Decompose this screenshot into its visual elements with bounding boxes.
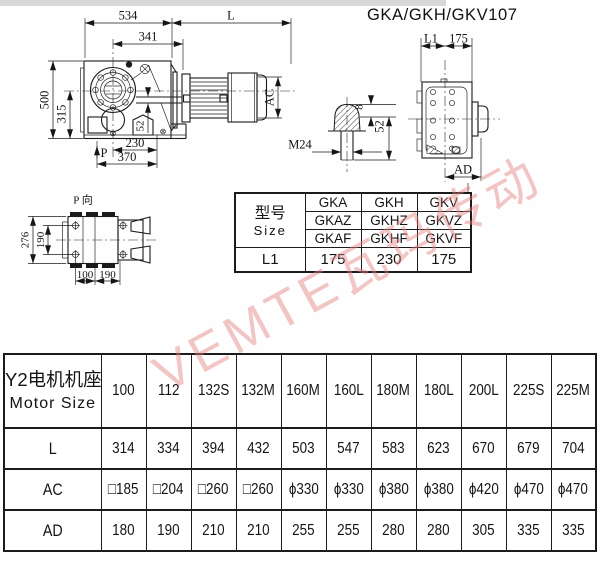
dim-52-shaft: 52 [373,120,387,133]
motor-col-header: 160M [281,354,326,428]
dim-8: 8 [354,104,366,110]
dim-L1: L1 [424,32,438,46]
size-table-header-en: Size [236,223,305,238]
model-cell: GKA [305,193,361,212]
table-cell: 704 [551,428,596,469]
table-cell: 314 [101,428,146,469]
motor-col-header: 180L [416,354,461,428]
model-cell: GKVZ [417,212,471,230]
table-cell: 432 [236,428,281,469]
motor-col-header: 132M [236,354,281,428]
motor-col-header: 160L [326,354,371,428]
table-cell: 334 [146,428,191,469]
table-cell: 335 [551,510,596,551]
motor-size-table: Y2电机机座号 Motor Size 100 112 132S 132M 160… [3,353,597,552]
l1-row-label: L1 [235,248,305,273]
model-cell: GKV [417,193,471,212]
table-cell: 255 [326,510,371,551]
size-table: 型号 Size GKA GKH GKV GKAZ GKHZ GKVZ GKAF … [234,192,472,273]
dim-175: 175 [449,32,468,46]
row-label-AC: AC [4,469,101,510]
dim-315: 315 [55,105,69,124]
shaft-detail: M24 8 52 [288,97,396,172]
dim-500: 500 [38,91,52,110]
motor-col-header: 200L [461,354,506,428]
dim-534: 534 [119,9,139,23]
row-label-L: L [4,428,101,469]
dim-190-horizontal: 190 [99,269,116,281]
dim-100: 100 [77,269,94,281]
model-cell: GKAZ [305,212,361,230]
table-cell: 679 [506,428,551,469]
row-label-AD: AD [4,510,101,551]
l1-value-cell: 175 [417,248,471,273]
dim-AC: AC [263,89,277,106]
table-cell: ϕ470 [506,469,551,510]
dim-52-side: 52 [135,121,147,132]
dim-P: P [101,146,108,160]
table-cell: 180 [101,510,146,551]
table-cell: 503 [281,428,326,469]
motor-col-header: 225S [506,354,551,428]
l1-value-cell: 175 [305,248,361,273]
table-cell: ϕ330 [281,469,326,510]
datasheet-page: 534 L 341 500 315 52 230 370 P AC [0,0,600,574]
motor-table-header-cn: Y2电机机座号 [5,367,101,393]
model-cell: GKHZ [361,212,417,230]
table-cell: 280 [371,510,416,551]
table-cell: □260 [236,469,281,510]
dim-230: 230 [126,136,145,150]
dim-L: L [227,9,235,23]
table-cell: □204 [146,469,191,510]
table-cell: ϕ330 [326,469,371,510]
table-cell: 190 [146,510,191,551]
dim-190-vertical: 190 [35,231,47,248]
motor-table-header-cell: Y2电机机座号 Motor Size [4,354,101,428]
table-cell: 255 [281,510,326,551]
table-cell: ϕ380 [416,469,461,510]
motor-col-header: 225M [551,354,596,428]
table-cell: 623 [416,428,461,469]
motor-col-header: 132S [191,354,236,428]
table-cell: ϕ470 [551,469,596,510]
model-cell: GKVF [417,230,471,248]
model-cell: GKHF [361,230,417,248]
drawing-title: GKA/GKH/GKV107 [367,6,597,25]
table-cell: □260 [191,469,236,510]
dim-276: 276 [20,231,32,248]
l1-value-cell: 230 [361,248,417,273]
table-cell: □185 [101,469,146,510]
table-cell: 305 [461,510,506,551]
dim-370: 370 [118,150,137,164]
table-cell: 210 [236,510,281,551]
table-cell: ϕ380 [371,469,416,510]
model-cell: GKH [361,193,417,212]
table-cell: 335 [506,510,551,551]
table-cell: 670 [461,428,506,469]
table-cell: 394 [191,428,236,469]
p-view: P 向 [20,193,157,286]
table-cell: 280 [416,510,461,551]
motor-col-header: 180M [371,354,416,428]
table-cell: 583 [371,428,416,469]
size-table-header-cell: 型号 Size [235,193,305,248]
model-cell: GKAF [305,230,361,248]
dim-341: 341 [139,30,158,44]
size-table-header-cn: 型号 [236,204,305,223]
p-view-label: P 向 [73,193,92,207]
motor-table-header-en: Motor Size [5,393,101,415]
side-view: 534 L 341 500 315 52 230 370 P AC [38,9,299,169]
motor-col-header: 100 [101,354,146,428]
table-cell: ϕ420 [461,469,506,510]
motor-col-header: 112 [146,354,191,428]
table-cell: 210 [191,510,236,551]
table-cell: 547 [326,428,371,469]
dim-AD: AD [454,163,472,177]
technical-drawing: 534 L 341 500 315 52 230 370 P AC [0,0,600,350]
dim-M24: M24 [288,138,312,152]
end-view: L1 175 AD [408,32,500,195]
